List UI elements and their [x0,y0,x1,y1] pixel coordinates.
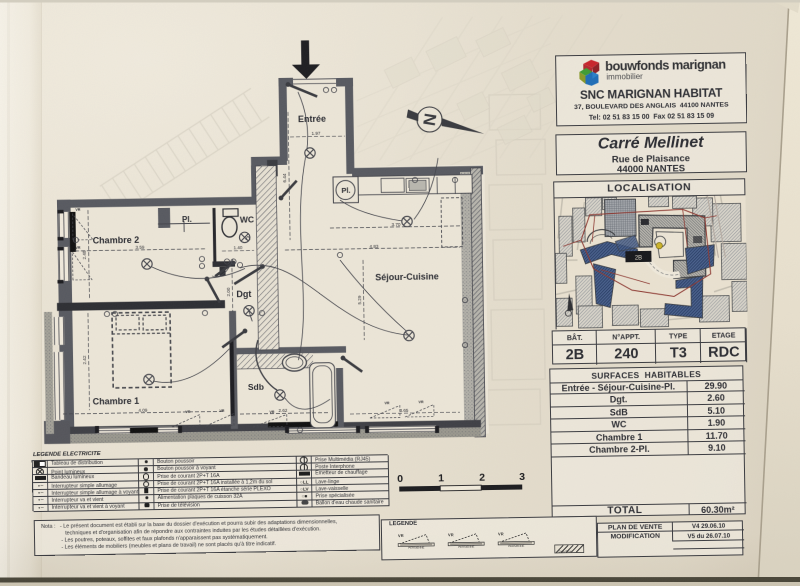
svg-text:VR: VR [498,531,504,536]
svg-text:3.65: 3.65 [399,408,408,413]
svg-text:PERSIENNE: PERSIENNE [408,545,424,549]
svg-text:Pl.: Pl. [182,215,192,224]
svg-text:VR: VR [384,401,389,405]
svg-text:WC: WC [240,214,254,224]
svg-text:VR: VR [75,246,80,250]
svg-text:Entrée: Entrée [298,114,326,124]
svg-text:VR: VR [448,532,454,537]
svg-text:2.48: 2.48 [82,250,87,259]
svg-text:1: 1 [438,472,444,484]
svg-text:PERSIENNE: PERSIENNE [458,544,474,548]
svg-text:0: 0 [397,473,403,485]
svg-text:PERSIENNE: PERSIENNE [508,543,524,547]
svg-text:VR: VR [398,533,404,538]
svg-text:3.59: 3.59 [135,245,144,250]
svg-text:2: 2 [479,472,485,484]
svg-text:2.62: 2.62 [278,408,287,413]
svg-text:Sdb: Sdb [248,382,264,392]
svg-text:VR: VR [219,409,224,413]
svg-text:5.29: 5.29 [357,295,362,304]
svg-text:Pl.: Pl. [341,186,350,195]
svg-text:Dgt: Dgt [236,289,251,299]
svg-text:VR: VR [418,400,423,404]
svg-text:2B: 2B [635,255,642,261]
svg-text:2.42: 2.42 [82,355,87,364]
svg-text:Chambre 1: Chambre 1 [93,396,140,407]
svg-text:4.83: 4.83 [369,244,378,249]
svg-text:4.09: 4.09 [138,408,147,413]
svg-text:1.97: 1.97 [311,131,320,136]
svg-text:1.40: 1.40 [233,245,242,250]
svg-text:VR: VR [75,208,80,212]
svg-text:2.00: 2.00 [226,287,231,296]
svg-text:Chambre 2: Chambre 2 [93,235,140,246]
svg-text:3.70: 3.70 [391,222,400,227]
svg-text:3: 3 [519,471,525,483]
svg-text:6.44: 6.44 [282,173,287,182]
svg-text:Séjour-Cuisine: Séjour-Cuisine [375,271,439,282]
